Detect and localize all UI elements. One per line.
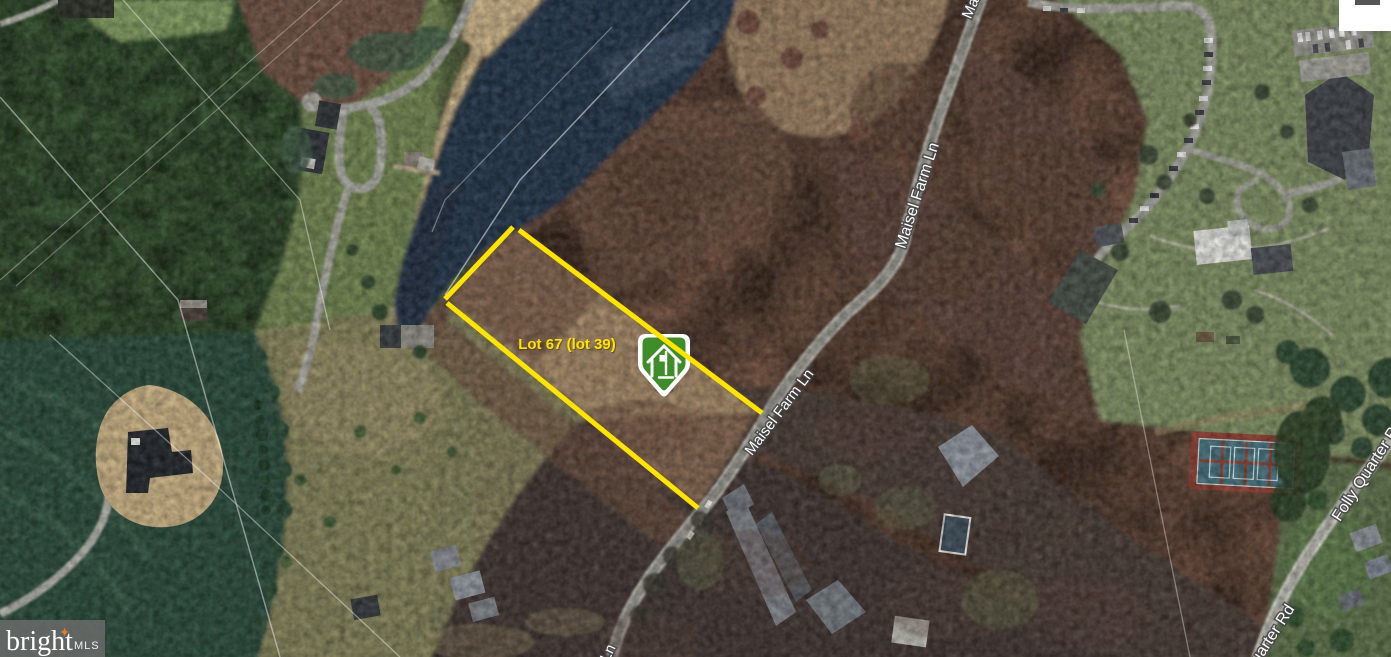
svg-text:Lot 67 (lot 39): Lot 67 (lot 39) bbox=[518, 336, 616, 353]
svg-text:MLS: MLS bbox=[74, 640, 100, 652]
svg-text:✦: ✦ bbox=[60, 627, 69, 639]
